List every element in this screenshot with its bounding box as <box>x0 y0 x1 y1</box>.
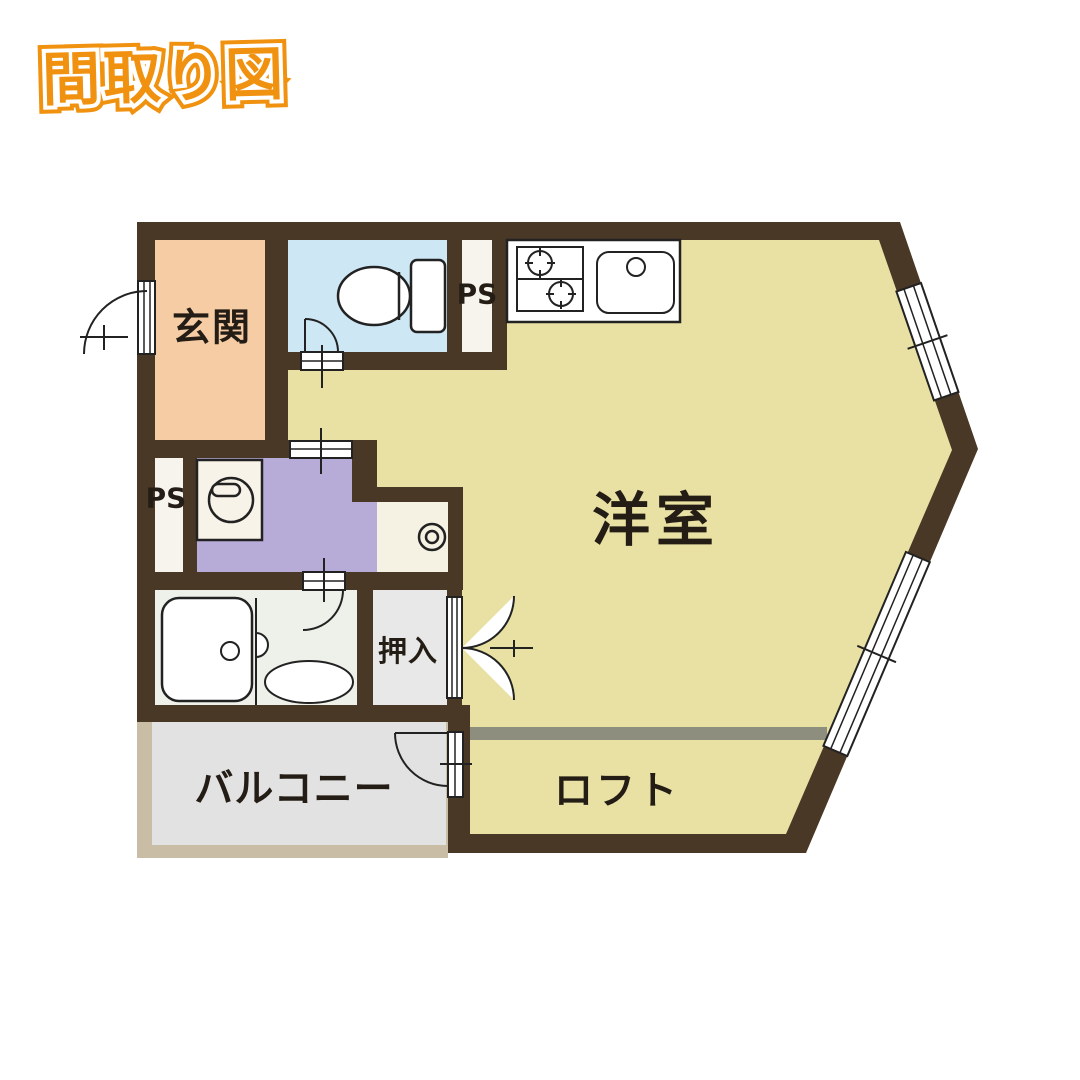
loft-label: ロフト <box>554 760 680 816</box>
ps-mid-label: PS <box>146 482 187 515</box>
floorplan-badge: 間取り図 間取り図 間取り図 <box>41 27 287 117</box>
washbasin-icon <box>197 460 262 540</box>
floorplan-page: 玄関 PS PS 洋室 押入 バルコニー ロフト 間取り図 間取り図 間取り図 <box>0 0 1080 1080</box>
stove-icon <box>517 247 583 311</box>
bathtub-icon <box>162 598 252 701</box>
entrance-door <box>80 281 155 354</box>
ps-mid-floor <box>155 458 183 572</box>
toilet-icon <box>338 260 445 332</box>
badge-text: 間取り図 <box>41 40 287 114</box>
loft-edge-line <box>470 727 827 740</box>
western-room-label: 洋室 <box>592 473 720 557</box>
balcony-label: バルコニー <box>194 758 393 814</box>
ps-top-label: PS <box>457 278 498 311</box>
entrance-label: 玄関 <box>172 297 252 352</box>
closet-label: 押入 <box>378 628 438 670</box>
floorplan-drawing <box>0 0 1080 1080</box>
kitchen-sink-icon <box>597 252 674 313</box>
